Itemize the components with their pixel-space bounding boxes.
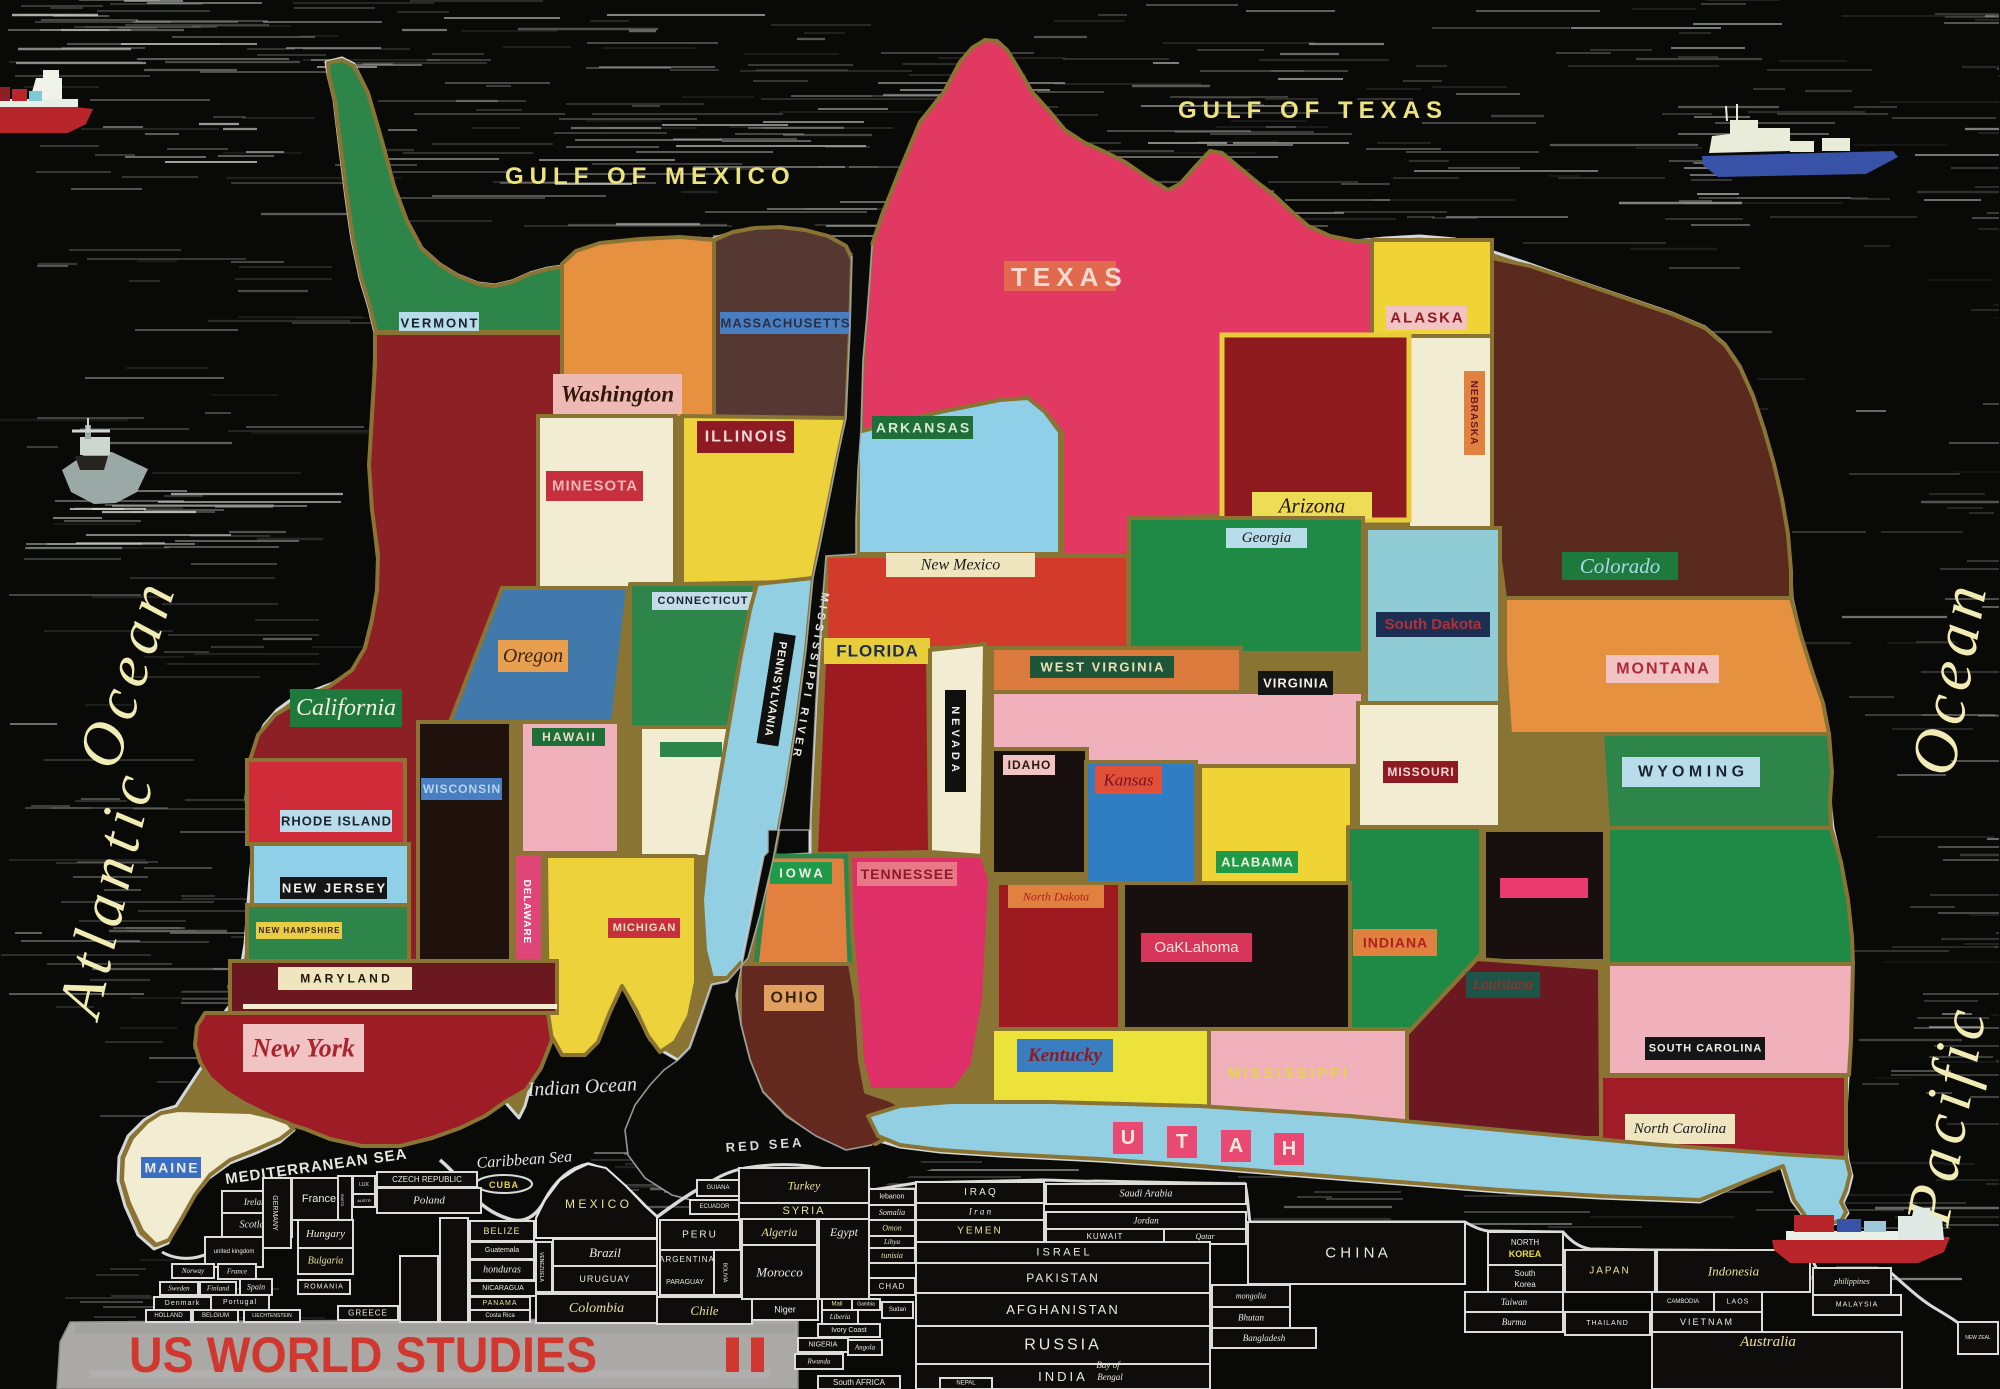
svg-text:South Dakota: South Dakota (1385, 616, 1482, 633)
svg-text:MASSACHUSETTS: MASSACHUSETTS (720, 316, 850, 331)
svg-text:South AFRICA: South AFRICA (833, 1378, 886, 1387)
svg-text:Indonesia: Indonesia (1707, 1264, 1760, 1279)
svg-text:Sweden: Sweden (168, 1285, 190, 1293)
svg-text:tunisia: tunisia (881, 1251, 903, 1260)
svg-text:Louisiana: Louisiana (1472, 977, 1533, 993)
svg-text:I R A Q: I R A Q (964, 1187, 996, 1198)
svg-text:JAPAN: JAPAN (1589, 1266, 1631, 1277)
svg-text:Poland: Poland (412, 1195, 445, 1207)
svg-text:Ivory Coast: Ivory Coast (831, 1327, 866, 1334)
svg-text:Oregon: Oregon (503, 645, 563, 667)
svg-text:MICHIGAN: MICHIGAN (613, 922, 677, 934)
svg-text:Turkey: Turkey (788, 1179, 821, 1193)
svg-text:TENNESSEE: TENNESSEE (861, 866, 955, 882)
svg-text:philippines: philippines (1833, 1277, 1870, 1286)
svg-text:FLORIDA: FLORIDA (836, 642, 919, 661)
svg-text:ILLINOIS: ILLINOIS (705, 429, 789, 446)
svg-text:MISSOURI: MISSOURI (1387, 765, 1454, 779)
svg-text:W Y O M I N G: W Y O M I N G (1638, 764, 1744, 781)
svg-text:Colombia: Colombia (569, 1301, 624, 1316)
svg-text:Spain: Spain (247, 1283, 265, 1292)
svg-text:VERMONT: VERMONT (401, 316, 480, 331)
svg-text:WEST VIRGINIA: WEST VIRGINIA (1041, 660, 1166, 675)
svg-text:KOREA: KOREA (1509, 1249, 1542, 1259)
svg-text:RHODE ISLAND: RHODE ISLAND (281, 814, 392, 829)
svg-text:Liberia: Liberia (829, 1313, 851, 1321)
svg-text:URUGUAY: URUGUAY (579, 1274, 630, 1284)
svg-text:WISCONSIN: WISCONSIN (423, 782, 501, 796)
svg-text:Algeria: Algeria (761, 1225, 798, 1239)
svg-text:Brazil: Brazil (589, 1245, 621, 1260)
svg-text:IDAHO: IDAHO (1008, 758, 1052, 772)
svg-text:NEW ZEAL: NEW ZEAL (1965, 1335, 1991, 1341)
svg-text:KUWAIT: KUWAIT (1087, 1232, 1124, 1241)
svg-text:Somalia: Somalia (879, 1208, 905, 1217)
svg-text:NEW HAMPSHIRE: NEW HAMPSHIRE (259, 926, 341, 935)
svg-text:VENEZUELA: VENEZUELA (538, 1252, 544, 1282)
svg-text:SWITZ: SWITZ (340, 1194, 345, 1207)
svg-text:PERU: PERU (682, 1230, 718, 1241)
svg-text:HAWAII: HAWAII (542, 730, 597, 744)
svg-text:Arizona: Arizona (1277, 494, 1346, 518)
svg-text:BELGIUM: BELGIUM (202, 1313, 229, 1319)
svg-text:Kansas: Kansas (1102, 771, 1153, 790)
svg-text:MONTANA: MONTANA (1616, 661, 1711, 678)
svg-text:M E X I C O: M E X I C O (565, 1197, 629, 1211)
svg-text:Chile: Chile (690, 1303, 718, 1318)
svg-text:NIGERIA: NIGERIA (809, 1342, 838, 1349)
svg-text:Niger: Niger (774, 1305, 796, 1315)
svg-text:South: South (1515, 1269, 1536, 1278)
svg-text:GULF OF MEXICO: GULF OF MEXICO (505, 163, 796, 190)
svg-text:DELAWARE: DELAWARE (521, 880, 532, 945)
svg-text:France: France (302, 1193, 336, 1205)
svg-text:IOWA: IOWA (779, 866, 826, 881)
svg-text:TEXAS: TEXAS (1011, 262, 1128, 292)
svg-text:North Carolina: North Carolina (1633, 1121, 1726, 1137)
svg-text:MAINE: MAINE (144, 1160, 199, 1176)
svg-text:mongolia: mongolia (1236, 1292, 1266, 1301)
svg-text:ECUADOR: ECUADOR (699, 1204, 730, 1210)
svg-text:New York: New York (251, 1034, 355, 1063)
svg-text:SYRIA: SYRIA (782, 1205, 825, 1217)
svg-text:INDIA: INDIA (1038, 1369, 1088, 1384)
svg-text:Korea: Korea (1514, 1280, 1536, 1289)
svg-text:ALABAMA: ALABAMA (1221, 855, 1294, 870)
svg-text:Bengal: Bengal (1097, 1372, 1123, 1382)
svg-text:BOLIVIA: BOLIVIA (722, 1263, 728, 1283)
svg-text:I S R A E L: I S R A E L (1036, 1247, 1089, 1259)
svg-text:I r a n: I r a n (968, 1207, 992, 1217)
svg-text:Finland: Finland (206, 1285, 230, 1293)
svg-text:AFGHANISTAN: AFGHANISTAN (1006, 1302, 1120, 1317)
svg-text:VIETNAM: VIETNAM (1680, 1317, 1734, 1327)
svg-text:lebanon: lebanon (880, 1194, 905, 1201)
svg-text:Guatemala: Guatemala (485, 1247, 519, 1254)
svg-text:Bulgaria: Bulgaria (308, 1256, 344, 1267)
svg-text:Washington: Washington (561, 382, 674, 407)
svg-text:Bhutan: Bhutan (1238, 1313, 1264, 1323)
svg-text:Costa Rica: Costa Rica (485, 1313, 515, 1319)
svg-text:LAOS: LAOS (1727, 1299, 1750, 1306)
svg-text:Georgia: Georgia (1242, 530, 1291, 546)
svg-text:Taiwan: Taiwan (1501, 1297, 1528, 1307)
svg-text:RUSSIA: RUSSIA (1024, 1337, 1102, 1354)
svg-text:LIECHTENSTEIN: LIECHTENSTEIN (252, 1313, 292, 1319)
svg-text:C H I N A: C H I N A (1325, 1245, 1388, 1262)
svg-text:Omon: Omon (882, 1224, 902, 1233)
svg-text:honduras: honduras (483, 1265, 521, 1276)
svg-text:Morocco: Morocco (755, 1265, 803, 1280)
svg-text:NORTH: NORTH (1511, 1238, 1540, 1247)
svg-text:CHAD: CHAD (879, 1282, 906, 1291)
svg-text:A: A (1229, 1135, 1243, 1157)
svg-text:II: II (720, 1327, 770, 1383)
svg-text:PANAMA: PANAMA (482, 1300, 517, 1307)
svg-text:U: U (1121, 1127, 1135, 1149)
svg-text:Denmark: Denmark (165, 1300, 200, 1307)
svg-text:Bangladesh: Bangladesh (1243, 1333, 1286, 1343)
svg-text:NEPAL: NEPAL (956, 1381, 976, 1387)
svg-text:Saudi Arabia: Saudi Arabia (1120, 1189, 1173, 1200)
svg-text:INDIANA: INDIANA (1363, 935, 1428, 951)
svg-text:THAILAND: THAILAND (1586, 1320, 1629, 1327)
svg-text:France: France (226, 1268, 247, 1276)
svg-text:OHIO: OHIO (771, 990, 820, 1007)
svg-text:OaKLahoma: OaKLahoma (1154, 939, 1239, 956)
svg-text:Burma: Burma (1502, 1317, 1527, 1327)
svg-text:ARKANSAS: ARKANSAS (876, 420, 971, 436)
svg-text:MISSISSIPPI: MISSISSIPPI (1228, 1065, 1350, 1082)
svg-text:Bay of: Bay of (1096, 1360, 1121, 1370)
svg-text:united kingdom: united kingdom (214, 1249, 255, 1255)
svg-text:ROMANIA: ROMANIA (304, 1284, 344, 1291)
svg-text:Libya: Libya (883, 1238, 900, 1246)
svg-text:YEMEN: YEMEN (957, 1226, 1003, 1237)
svg-text:CUBA: CUBA (489, 1180, 519, 1190)
svg-text:GREECE: GREECE (348, 1309, 388, 1318)
svg-text:Sudan: Sudan (889, 1307, 906, 1313)
svg-text:VIRGINIA: VIRGINIA (1263, 676, 1329, 691)
svg-text:Mali: Mali (831, 1302, 842, 1308)
svg-text:Australia: Australia (1739, 1334, 1796, 1350)
svg-text:M A R Y L A N D: M A R Y L A N D (300, 972, 390, 986)
svg-text:SOUTH CAROLINA: SOUTH CAROLINA (1649, 1043, 1763, 1055)
svg-text:Norway: Norway (181, 1267, 205, 1275)
svg-text:Hungary: Hungary (305, 1228, 345, 1240)
svg-text:Egypt: Egypt (829, 1225, 859, 1239)
svg-text:NEVADA: NEVADA (949, 706, 961, 776)
svg-text:PAKISTAN: PAKISTAN (1026, 1271, 1100, 1285)
svg-text:PARAGUAY: PARAGUAY (666, 1279, 704, 1286)
svg-text:NEW JERSEY: NEW JERSEY (282, 881, 387, 896)
svg-text:Colorado: Colorado (1580, 554, 1661, 578)
svg-text:Jordan: Jordan (1133, 1216, 1159, 1226)
svg-text:CONNECTICUT: CONNECTICUT (657, 595, 748, 607)
svg-text:New Mexico: New Mexico (920, 557, 1001, 574)
svg-text:NEBRASKA: NEBRASKA (1468, 381, 1479, 446)
svg-text:CZECH REPUBLIC: CZECH REPUBLIC (392, 1175, 462, 1184)
svg-text:GULF OF TEXAS: GULF OF TEXAS (1178, 97, 1448, 124)
svg-text:ARGENTINA: ARGENTINA (659, 1255, 715, 1264)
svg-text:BELIZE: BELIZE (483, 1226, 520, 1236)
svg-text:Kentucky: Kentucky (1027, 1045, 1102, 1066)
svg-text:US WORLD STUDIES: US WORLD STUDIES (129, 1327, 597, 1383)
svg-text:Gambia: Gambia (857, 1302, 875, 1308)
svg-text:NICARAGUA: NICARAGUA (482, 1285, 524, 1292)
svg-text:CAMBODIA: CAMBODIA (1667, 1299, 1699, 1305)
svg-text:California: California (296, 695, 396, 721)
svg-text:Angola: Angola (854, 1344, 876, 1352)
svg-text:T: T (1176, 1131, 1188, 1153)
svg-text:AUSTR: AUSTR (357, 1198, 371, 1203)
svg-text:LUX: LUX (359, 1182, 369, 1188)
svg-text:GUIANA: GUIANA (706, 1185, 729, 1191)
svg-text:GERMANY: GERMANY (271, 1195, 278, 1231)
svg-text:H: H (1282, 1138, 1296, 1160)
svg-text:ALASKA: ALASKA (1390, 310, 1465, 327)
svg-text:Portugal: Portugal (223, 1299, 257, 1306)
svg-text:North Dakota: North Dakota (1022, 890, 1089, 904)
svg-text:MALAYSIA: MALAYSIA (1836, 1302, 1879, 1309)
svg-text:HOLLAND: HOLLAND (154, 1313, 183, 1319)
svg-text:Rwanda: Rwanda (807, 1358, 831, 1366)
svg-text:Qatar: Qatar (1195, 1232, 1215, 1241)
svg-text:MINESOTA: MINESOTA (552, 478, 638, 495)
